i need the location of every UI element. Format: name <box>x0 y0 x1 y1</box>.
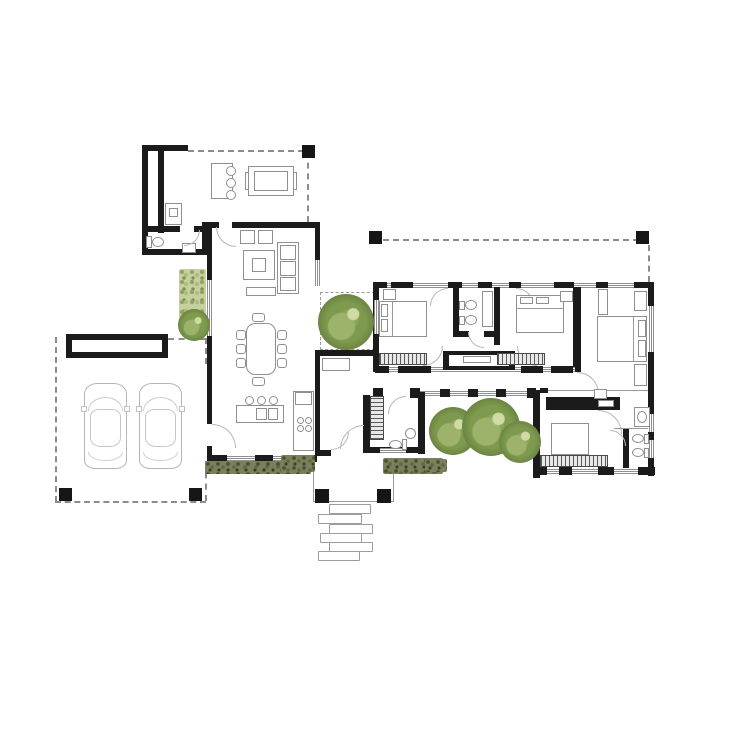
wall-segment <box>648 282 654 306</box>
stepping-stone <box>329 504 371 514</box>
wall-segment <box>540 388 548 393</box>
wall-segment <box>363 395 370 453</box>
bar-stool <box>226 178 236 188</box>
tree <box>178 309 210 341</box>
dining-chair <box>277 330 287 340</box>
hedge <box>281 455 315 472</box>
roof-overhang-dashed <box>373 239 649 241</box>
structural-post <box>315 489 329 503</box>
mullion <box>440 389 450 397</box>
island-sink <box>256 408 267 420</box>
toilet-tank <box>644 434 649 444</box>
wall-segment <box>158 145 164 233</box>
wall-segment <box>484 331 500 337</box>
roof-overhang-dashed <box>648 245 650 282</box>
wall-segment <box>315 450 331 456</box>
garage-dashed-edge <box>55 501 206 503</box>
island-stool <box>269 396 278 405</box>
structural-post <box>369 231 382 244</box>
pillow <box>638 320 646 337</box>
mullion <box>496 389 506 397</box>
wardrobe <box>379 353 427 365</box>
bidet-bowl <box>465 315 477 325</box>
coffee-table-inner <box>252 258 266 272</box>
guest-bed-table <box>551 423 589 455</box>
wall-segment <box>142 145 188 151</box>
wall-segment <box>551 366 573 373</box>
armchair <box>240 230 255 244</box>
garage-storage-inner <box>72 340 162 352</box>
window <box>315 260 320 286</box>
wall-segment <box>559 467 572 475</box>
sofa-cushion <box>280 277 296 291</box>
door-swing-garage-entry <box>212 424 236 448</box>
wall-segment <box>375 366 389 373</box>
car-roof <box>90 409 122 447</box>
desk-notch <box>598 400 614 407</box>
pillow <box>638 340 646 357</box>
tv-bench <box>246 287 276 296</box>
tree <box>318 294 374 350</box>
cooktop-burner <box>305 417 312 424</box>
fridge <box>295 392 312 405</box>
round-sink <box>405 428 416 439</box>
window-band <box>533 469 655 474</box>
bidet-base <box>644 448 649 458</box>
door-swing-bathroom <box>468 332 484 348</box>
sofa-cushion <box>280 245 296 260</box>
island-stool <box>257 396 266 405</box>
wall-segment <box>478 282 492 288</box>
toilet-tank <box>402 439 407 450</box>
island-sink <box>268 408 278 420</box>
nightstand <box>634 364 647 386</box>
wall-segment <box>207 336 212 424</box>
cooktop-burner <box>297 417 304 424</box>
cooktop-burner <box>297 425 304 432</box>
bbq-handle <box>293 172 297 190</box>
window <box>649 440 654 458</box>
pillow <box>536 297 549 304</box>
wall-segment <box>232 222 320 228</box>
closet <box>598 289 608 315</box>
bar-stool <box>226 166 236 176</box>
structural-post <box>302 145 315 158</box>
toilet-bowl <box>152 237 164 247</box>
tree <box>499 421 541 463</box>
blanket-line <box>392 302 393 336</box>
sofa-cushion <box>280 261 296 276</box>
bar-stool <box>226 190 236 200</box>
dining-chair <box>252 313 265 322</box>
garage-dashed-edge <box>55 337 57 502</box>
car-roof <box>145 409 177 447</box>
toilet-bowl <box>465 300 477 310</box>
dining-chair <box>236 330 246 340</box>
wall-segment <box>598 467 614 475</box>
toilet-bowl <box>389 440 402 449</box>
stepping-stone <box>318 551 360 561</box>
door-swing-powder <box>388 396 406 414</box>
car <box>139 383 182 469</box>
tv-console <box>463 356 491 363</box>
thin-wall-line <box>614 428 648 429</box>
wall-segment <box>142 226 180 232</box>
blanket-line <box>517 308 563 309</box>
door-swing-utility <box>216 227 236 247</box>
blanket-line <box>633 317 634 361</box>
wall-segment <box>315 350 320 455</box>
hedge <box>425 459 447 472</box>
wall-segment <box>554 282 574 288</box>
car <box>84 383 127 469</box>
armchair <box>258 230 273 244</box>
nightstand <box>383 289 396 300</box>
dining-chair <box>236 358 246 368</box>
dining-table <box>246 323 276 375</box>
mullion <box>468 389 478 397</box>
floor-plan <box>0 0 736 736</box>
structural-post <box>636 231 649 244</box>
wall-segment <box>453 331 469 337</box>
wardrobe <box>540 455 608 467</box>
structural-post <box>189 488 202 501</box>
terrace-dashed-edge <box>307 152 309 222</box>
dining-chair <box>277 358 287 368</box>
wall-segment <box>391 282 413 288</box>
wall-segment <box>509 282 521 288</box>
dining-chair <box>236 344 246 354</box>
stepping-stone <box>318 514 362 524</box>
pillow <box>381 319 388 332</box>
structural-post <box>59 488 72 501</box>
door-swing-wc <box>184 230 200 246</box>
window <box>649 306 654 352</box>
pillow <box>520 297 533 304</box>
wall-segment <box>521 366 543 373</box>
bidet-bowl <box>632 448 644 457</box>
terrace-dashed-edge <box>188 150 304 152</box>
bbq-table-top <box>254 171 288 191</box>
bbq-handle <box>245 172 249 190</box>
cooktop-burner <box>305 425 312 432</box>
dining-chair <box>252 377 265 386</box>
wall-segment <box>623 428 629 468</box>
dining-chair <box>277 344 287 354</box>
wall-segment <box>398 366 431 373</box>
nightstand <box>634 291 647 311</box>
island-stool <box>245 396 254 405</box>
planter-box <box>322 358 350 371</box>
linen-closet <box>370 396 384 440</box>
garage-dashed-edge <box>205 338 207 364</box>
bath-vanity <box>482 291 493 327</box>
pillow <box>381 304 388 317</box>
wardrobe <box>497 353 545 365</box>
wall-segment <box>596 282 608 288</box>
wall-segment <box>315 222 320 260</box>
wall-segment <box>648 458 654 476</box>
nightstand <box>560 291 573 302</box>
wall-segment <box>207 222 212 280</box>
vanity-sink <box>637 411 647 423</box>
toilet-bowl <box>632 434 644 443</box>
wall-segment <box>418 392 425 454</box>
wall-segment <box>320 350 375 356</box>
wall-segment <box>573 287 581 372</box>
laundry-sink-basin <box>169 208 178 217</box>
wall-segment <box>453 287 459 337</box>
desk-chair <box>594 389 607 399</box>
door-swing-terrace <box>430 288 448 306</box>
wall-segment <box>533 467 547 475</box>
console-edge <box>443 366 515 370</box>
wall-segment <box>648 352 654 398</box>
structural-post <box>377 489 391 503</box>
